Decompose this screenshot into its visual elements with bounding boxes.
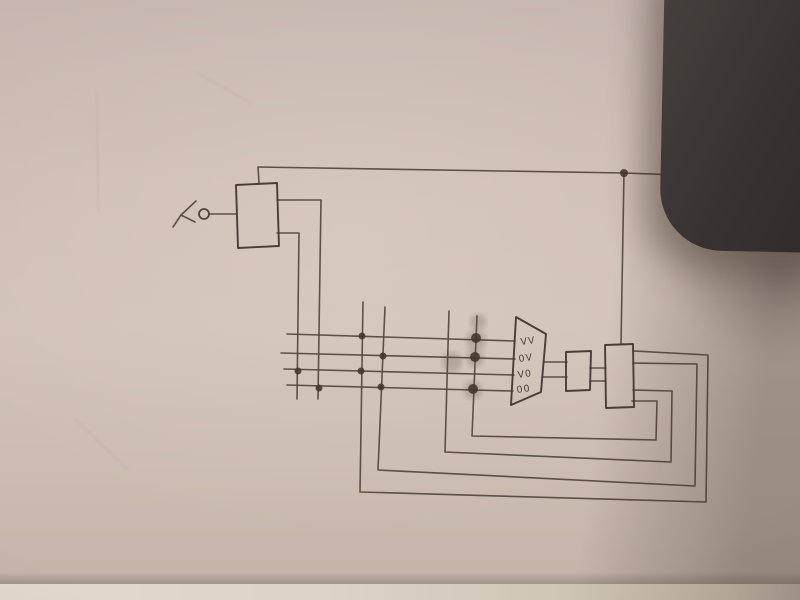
paper-crease [96,92,99,212]
mux-input-label: 00 [516,383,531,396]
paper-bottom-edge [0,584,800,600]
paper-crease [74,418,128,470]
junction-colC-row3 [358,368,365,375]
mux-input-label: VV [520,335,536,348]
graphite-smudge [442,352,462,372]
paper-crease [196,72,252,104]
junction-colD-row4 [378,384,385,391]
junction-drop-wire [621,173,624,344]
input-label-stroke-2 [181,215,195,222]
junction-colD-row2 [380,353,387,360]
input-label-stroke-1 [173,201,196,227]
middle-box [566,351,591,391]
mux-input-label: 0V [518,352,534,365]
top-output-wire [258,167,709,183]
box-output-wire-2 [277,233,299,399]
photo-of-circuit-sketch: VV0VV000 [0,0,800,600]
feedback-loop-inner [472,316,657,440]
junction-colF-row4 [468,384,478,394]
junction-colF-row2 [470,352,480,362]
state-box [605,344,634,408]
junction-colF-row1 [471,333,481,343]
feedback-loop-2 [378,307,697,486]
junction-colC-row1 [359,333,366,340]
input-box [236,183,279,248]
dark-object-corner [659,0,800,254]
junction-colA-row3 [295,368,302,375]
junction-top-node [620,169,628,177]
input-terminal [199,209,209,219]
mux-input-label: V0 [517,368,533,381]
graphite-smudge [470,314,486,330]
junction-colB-row4 [316,385,323,392]
